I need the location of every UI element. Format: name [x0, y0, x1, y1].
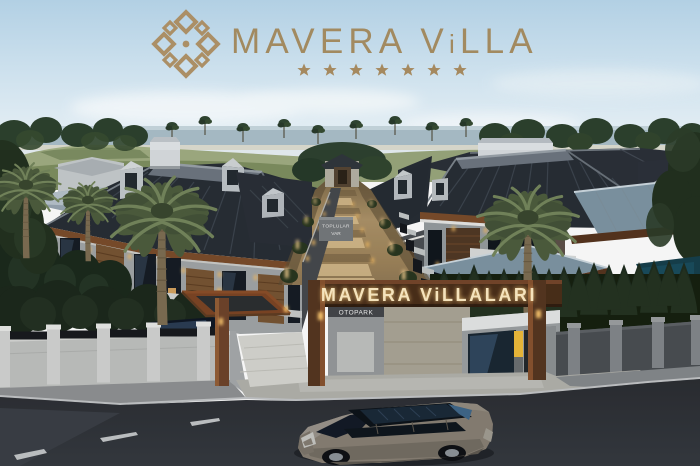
svg-text:MAVERA ViLLA: MAVERA ViLLA — [231, 22, 538, 61]
